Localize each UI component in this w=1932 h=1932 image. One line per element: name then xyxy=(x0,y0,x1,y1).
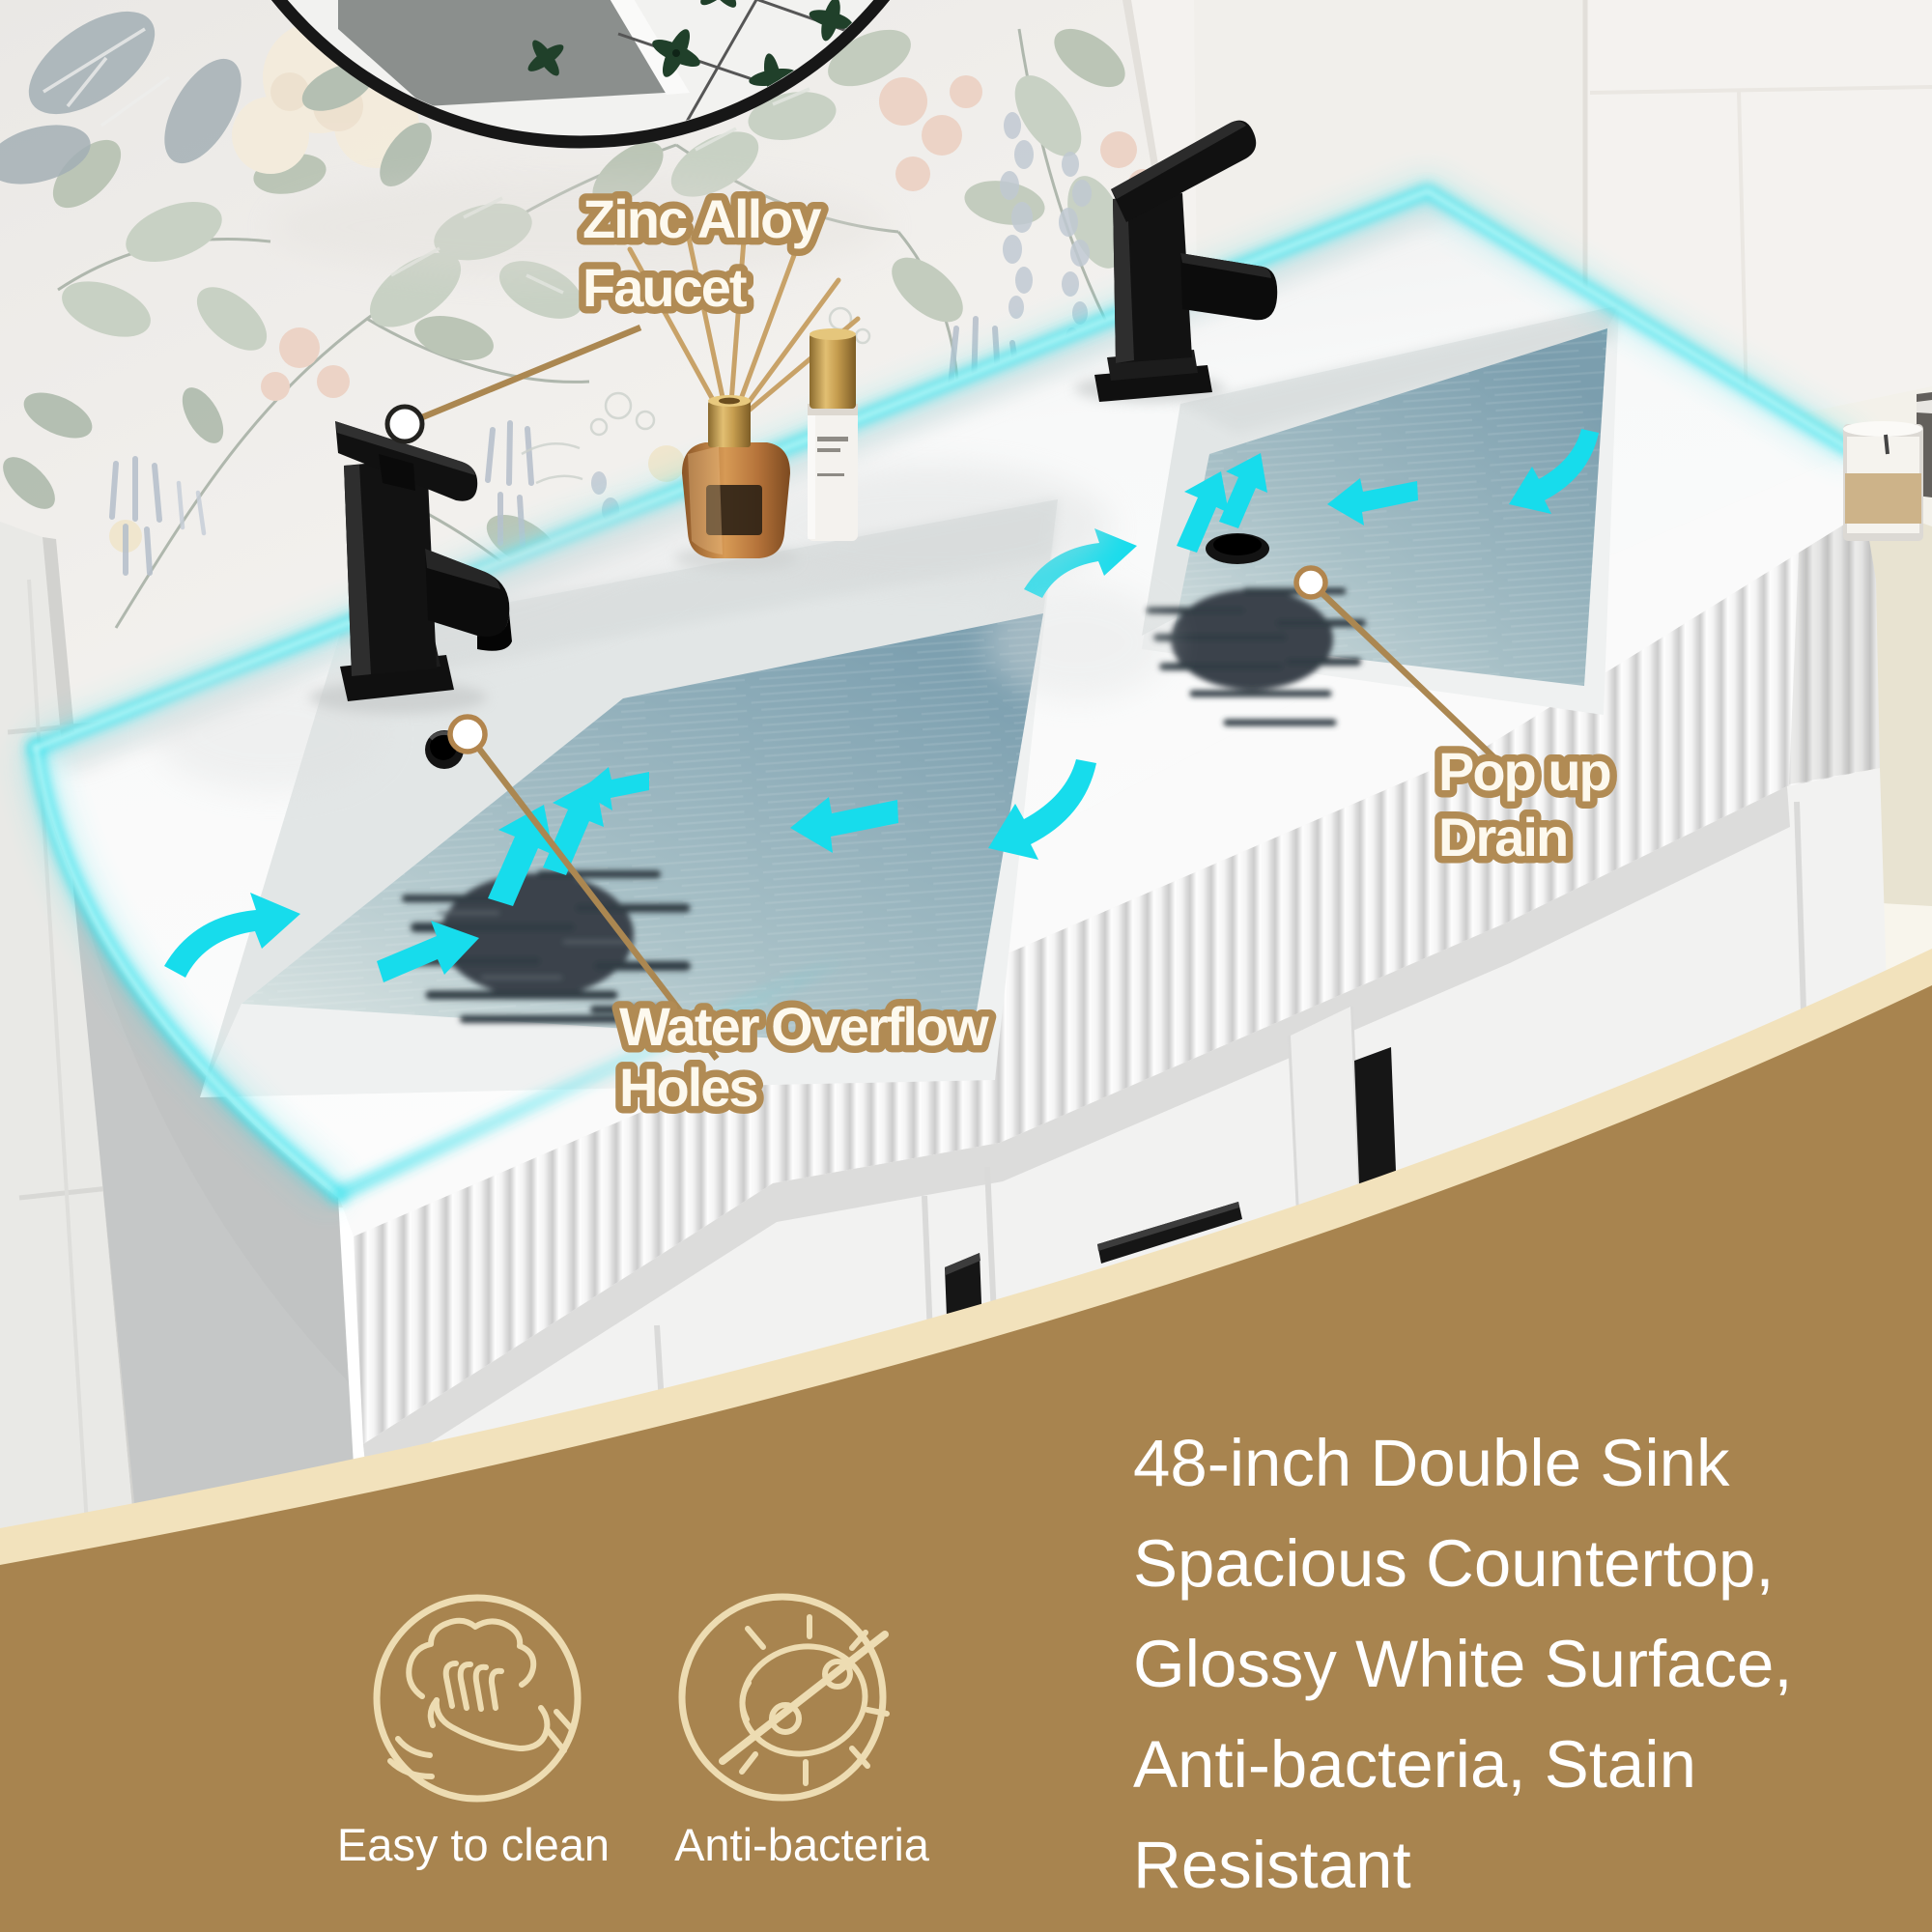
svg-text:Pop up: Pop up xyxy=(1438,741,1610,802)
svg-text:48-inch Double Sink: 48-inch Double Sink xyxy=(1133,1426,1730,1500)
svg-text:Faucet: Faucet xyxy=(582,257,747,318)
svg-text:Resistant: Resistant xyxy=(1133,1828,1411,1902)
svg-text:Water Overflow: Water Overflow xyxy=(619,996,989,1057)
svg-text:Easy to clean: Easy to clean xyxy=(337,1819,610,1870)
svg-text:Spacious Countertop,: Spacious Countertop, xyxy=(1133,1526,1775,1601)
svg-text:Anti-bacteria: Anti-bacteria xyxy=(674,1819,930,1870)
svg-text:Holes: Holes xyxy=(619,1057,757,1118)
svg-text:Zinc Alloy: Zinc Alloy xyxy=(582,188,821,249)
svg-text:Drain: Drain xyxy=(1438,807,1567,867)
svg-text:Glossy White Surface,: Glossy White Surface, xyxy=(1133,1627,1793,1701)
svg-text:Anti-bacteria, Stain: Anti-bacteria, Stain xyxy=(1133,1727,1696,1802)
